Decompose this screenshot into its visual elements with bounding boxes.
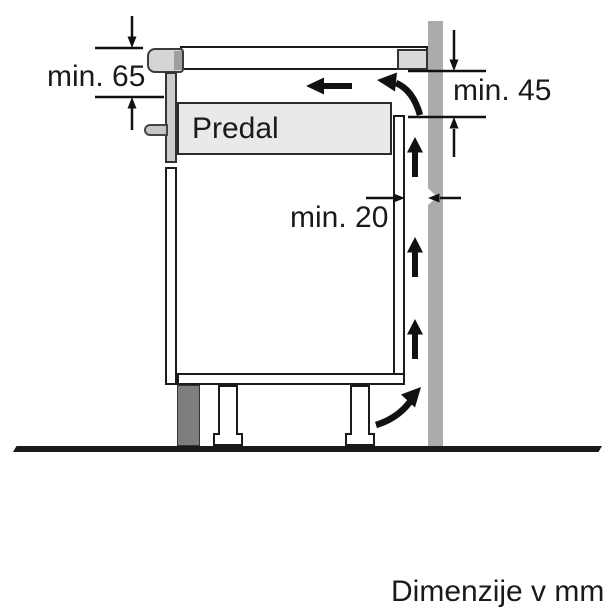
dim65-down-arrowhead-icon [128, 37, 137, 49]
units-note: Dimenzije v mm [391, 577, 604, 607]
airflow-top-curve [396, 83, 420, 115]
dim45-label: min. 45 [453, 76, 551, 106]
airflow-bottom-curve [376, 399, 412, 425]
hob-installation-diagram: Predal [0, 0, 615, 615]
dim20-right-arrowhead-icon [394, 194, 406, 203]
airflow-up-arrow-2-head-icon [407, 237, 423, 253]
dim45-up-arrowhead-icon [450, 117, 459, 129]
airflow-up-arrow-3-head-icon [407, 319, 423, 335]
airflow-top-curve-arrowhead-icon [377, 73, 397, 92]
airflow-up-arrow-1-head-icon [407, 137, 423, 153]
dim45-down-arrowhead-icon [450, 60, 459, 72]
dim65-up-arrowhead-icon [128, 97, 137, 109]
dim20-label: min. 20 [290, 203, 388, 233]
dim65-label: min. 65 [47, 62, 145, 92]
airflow-left-arrowhead-icon [306, 78, 324, 95]
